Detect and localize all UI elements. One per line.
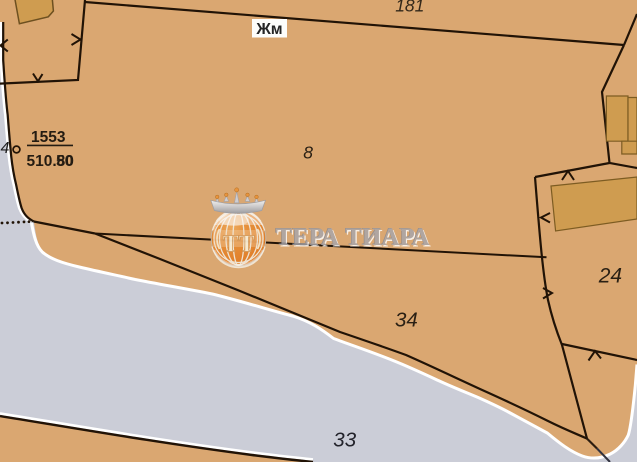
svg-text:33: 33	[333, 428, 356, 451]
svg-text:4: 4	[1, 140, 10, 157]
svg-text:ТЕРА ТИАРА: ТЕРА ТИАРА	[276, 222, 431, 251]
svg-text:50: 50	[56, 153, 73, 170]
svg-text:24: 24	[598, 264, 622, 287]
svg-text:Жм: Жм	[255, 21, 282, 38]
svg-text:ТТ: ТТ	[223, 232, 255, 258]
svg-text:181: 181	[395, 0, 424, 16]
svg-text:1553: 1553	[31, 129, 66, 146]
svg-text:8: 8	[303, 143, 313, 163]
svg-text:34: 34	[395, 308, 418, 331]
